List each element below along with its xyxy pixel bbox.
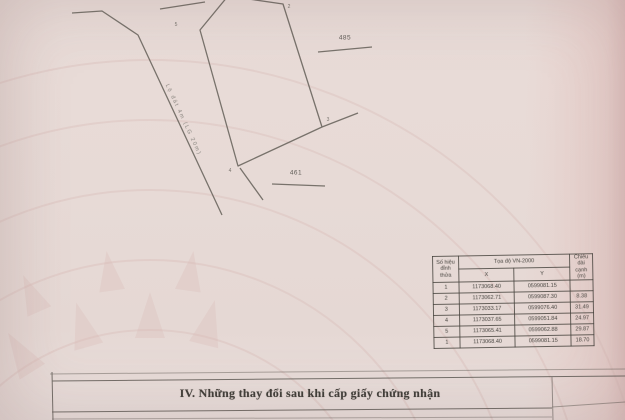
section-row-line: [52, 417, 552, 419]
section-box-bottom-right: [552, 402, 625, 407]
divider-line-outer: [50, 369, 625, 374]
certificate-photo: 485 461 2 3 4 5 Lộ đất 4m (LG 20m) Số hi…: [0, 0, 625, 420]
section-box-left: [52, 372, 53, 420]
section-borders: [0, 0, 625, 420]
section-box-bottom: [52, 408, 552, 412]
section-iv-heading: IV. Những thay đổi sau khi cấp giấy chứn…: [60, 386, 560, 401]
section-box-top: [52, 376, 625, 381]
